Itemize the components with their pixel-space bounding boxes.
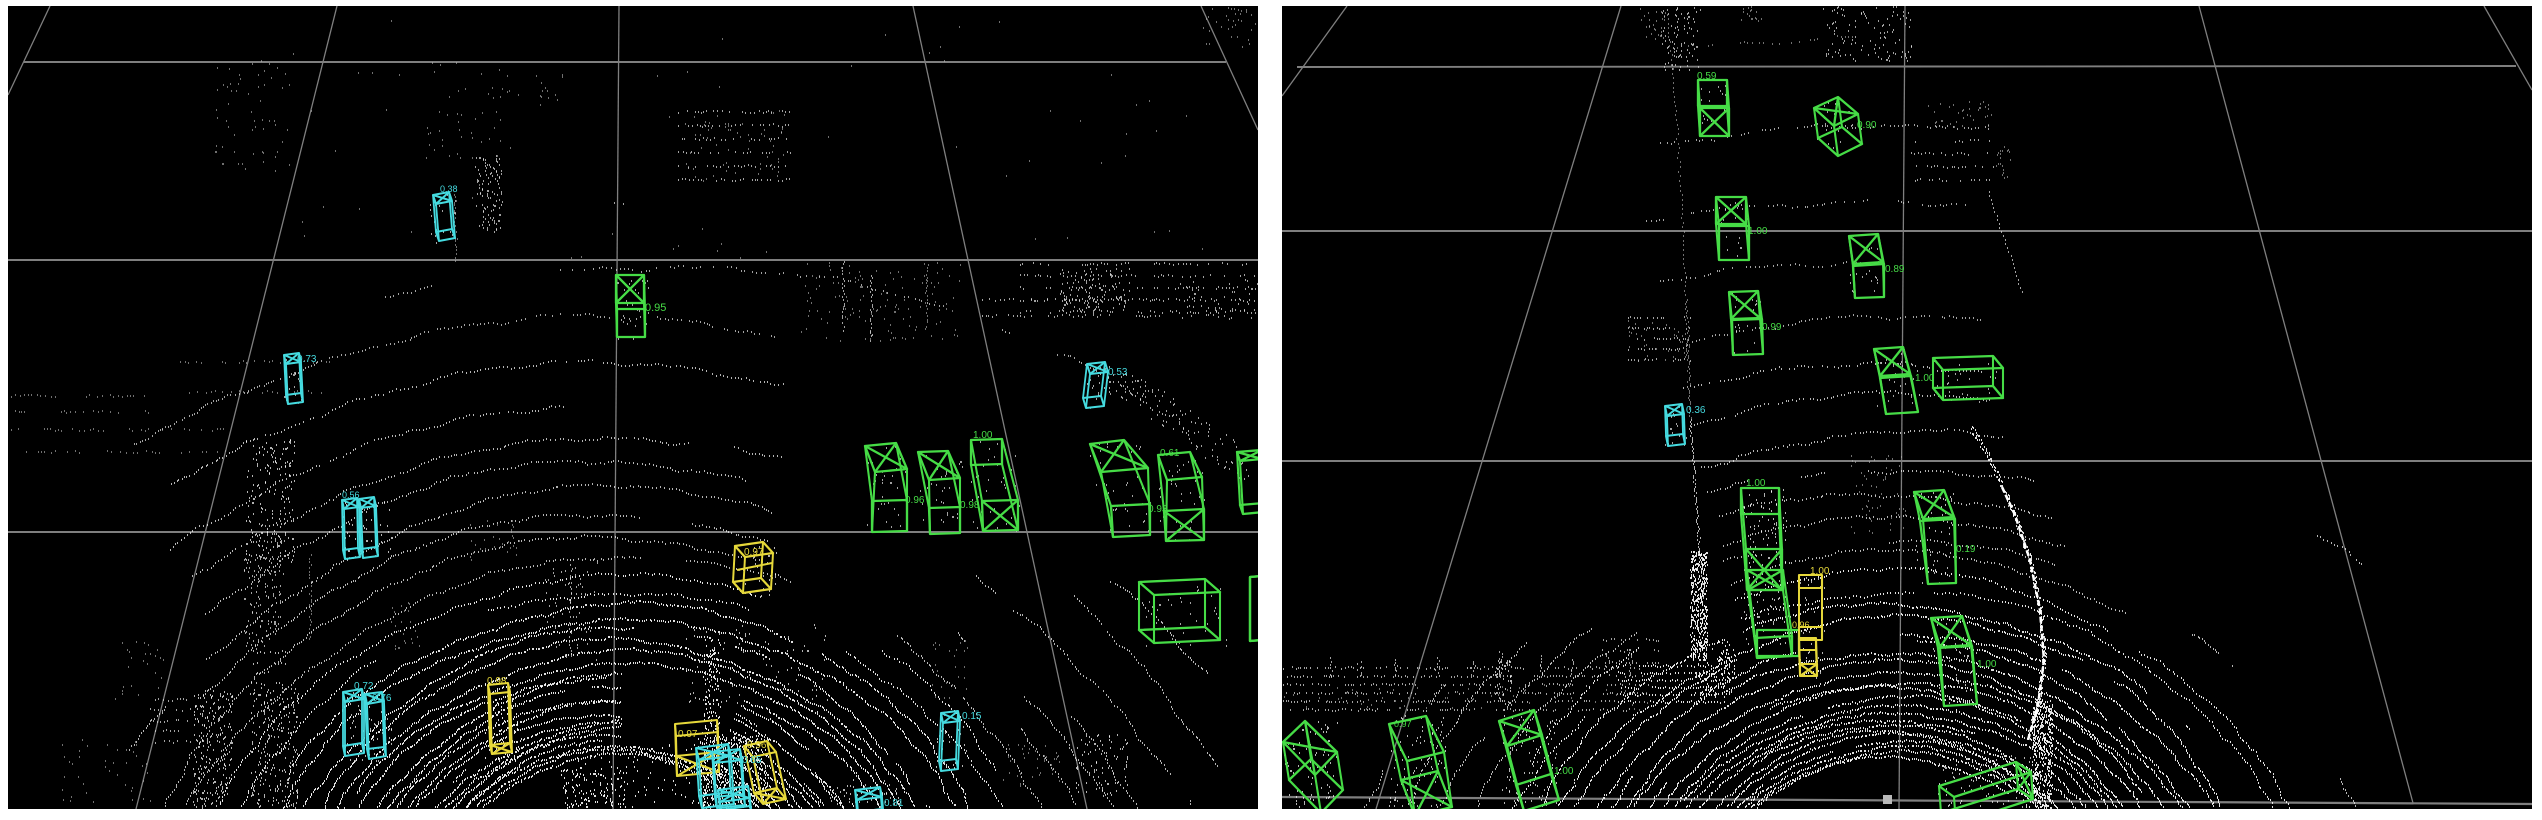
svg-text:1.00: 1.00 [1554, 766, 1574, 777]
svg-text:0.65: 0.65 [742, 755, 762, 766]
svg-text:0.97: 0.97 [744, 547, 764, 558]
svg-text:0.59: 0.59 [1697, 71, 1717, 82]
svg-text:0.38: 0.38 [440, 184, 458, 194]
svg-text:0.95: 0.95 [645, 302, 666, 314]
svg-text:0.96: 0.96 [1792, 620, 1810, 630]
svg-text:0.90: 0.90 [1857, 120, 1877, 131]
svg-text:0.56: 0.56 [342, 490, 360, 500]
svg-text:0.81: 0.81 [884, 798, 904, 809]
svg-text:0.98: 0.98 [487, 676, 507, 687]
svg-text:1.00: 1.00 [1748, 226, 1768, 237]
svg-text:1.00: 1.00 [1810, 566, 1830, 577]
svg-text:0.72: 0.72 [354, 681, 374, 692]
svg-text:0.99: 0.99 [1762, 322, 1782, 333]
svg-text:0.96: 0.96 [747, 740, 767, 751]
svg-text:0.89: 0.89 [1885, 264, 1905, 275]
svg-text:0.76: 0.76 [372, 693, 392, 704]
svg-text:1.00: 1.00 [973, 430, 993, 441]
svg-text:1.00: 1.00 [1915, 373, 1935, 384]
svg-text:0.73: 0.73 [297, 354, 317, 365]
svg-text:0.53: 0.53 [1108, 367, 1128, 378]
svg-text:0.36: 0.36 [1686, 405, 1706, 416]
svg-text:0.97: 0.97 [1394, 719, 1412, 729]
svg-text:1.00: 1.00 [1746, 478, 1766, 489]
svg-text:0.93: 0.93 [1148, 504, 1168, 515]
svg-text:0.15: 0.15 [962, 711, 982, 722]
svg-text:1.00: 1.00 [1977, 659, 1997, 670]
svg-text:0.19: 0.19 [1956, 544, 1976, 555]
svg-text:0.96: 0.96 [905, 495, 925, 506]
svg-text:0.97: 0.97 [678, 729, 698, 740]
